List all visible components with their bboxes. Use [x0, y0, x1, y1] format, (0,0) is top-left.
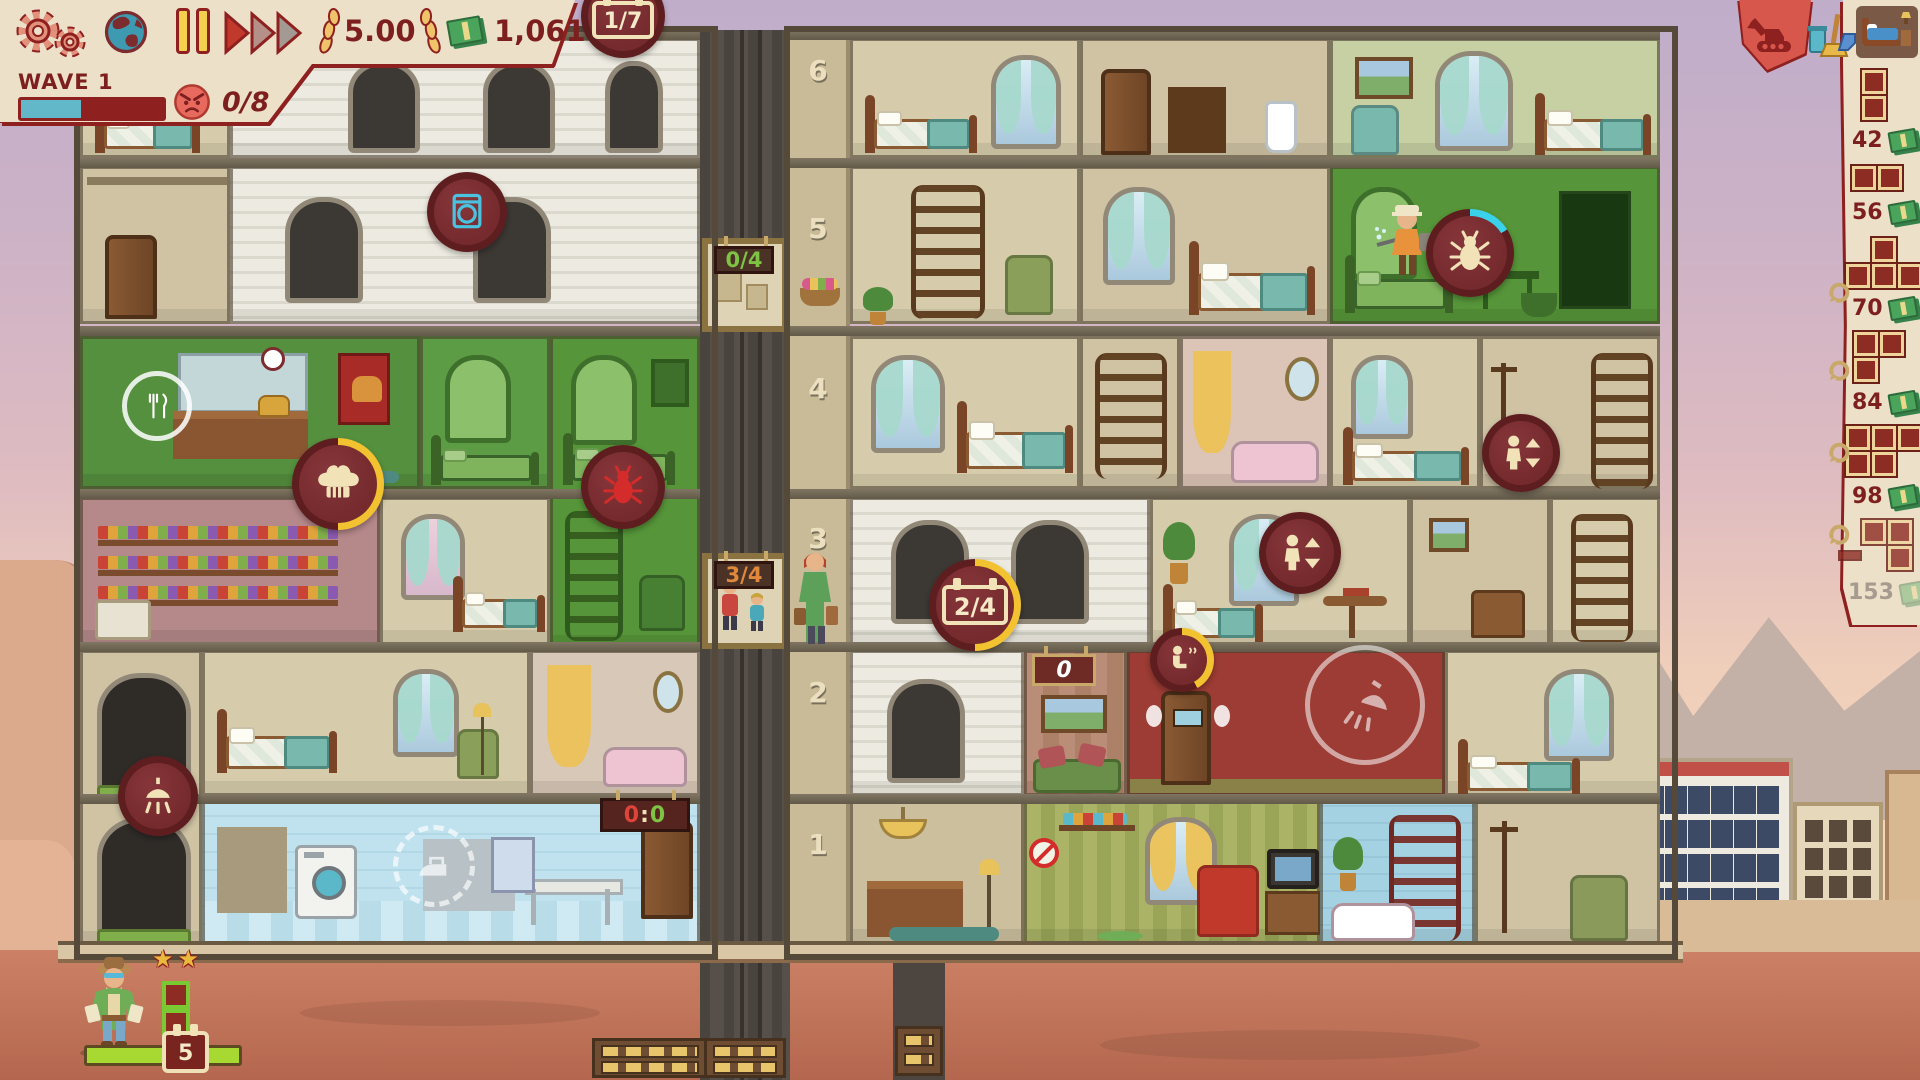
angry-face-icon — [172, 82, 212, 122]
bug-icon — [1446, 229, 1494, 277]
bed-furniture-icon — [1860, 10, 1914, 54]
room-study[interactable] — [1410, 497, 1550, 645]
waiting-guest-panel[interactable]: ★★ 5 — [70, 945, 250, 1080]
shoe-cubby — [217, 827, 287, 913]
basement-hatch-shaft — [704, 1038, 786, 1078]
shower-curtain — [547, 665, 591, 767]
rotate-shape-icon[interactable] — [1828, 442, 1850, 464]
steam-puff — [1146, 705, 1162, 727]
basket — [1521, 293, 1557, 317]
money-icon — [446, 15, 484, 47]
room-bedroom[interactable] — [1330, 38, 1660, 158]
wave-label: WAVE 1 — [18, 70, 166, 94]
floor-lamp — [473, 703, 491, 717]
rating-display: 5.00 — [316, 8, 444, 54]
wall-clock — [261, 347, 285, 371]
armchair — [639, 575, 685, 631]
tv-stand — [1265, 891, 1321, 935]
shop-item-price-disabled: 153 — [1848, 580, 1920, 605]
wall-shelf — [1059, 825, 1135, 831]
rooms-tab-selected[interactable] — [1856, 6, 1918, 58]
floor-label-2: 2 — [796, 676, 840, 709]
bread-box — [95, 600, 151, 640]
ground — [0, 950, 1920, 1080]
shower-room-icon — [1305, 645, 1425, 765]
sand-patch — [1100, 1030, 1480, 1060]
shop-item-shape-2-vertical[interactable] — [1862, 70, 1888, 122]
shop-item-price: 84 — [1852, 390, 1917, 415]
person-elevator-icon — [1277, 530, 1323, 576]
day-counter: 1/7 — [604, 9, 643, 34]
shop-item-shape-corner[interactable] — [1854, 332, 1906, 384]
flower-basket — [800, 288, 840, 306]
floor-label-1: 1 — [796, 828, 840, 861]
sitting-person-steam-icon — [1164, 642, 1200, 678]
prohibition-sign — [1029, 838, 1059, 868]
room-bathroom[interactable] — [1180, 336, 1330, 489]
shower-icon — [136, 774, 180, 818]
room-bedroom-infested[interactable] — [420, 336, 550, 489]
elevator-request-badge[interactable] — [1259, 512, 1341, 594]
elevator-upper-occupancy-sign: 0/4 — [714, 246, 774, 274]
money-value: 1,061 — [494, 14, 586, 48]
shop-item-price: 42 — [1852, 128, 1917, 153]
round-table — [1323, 596, 1387, 606]
wave-progress-bar — [18, 97, 166, 121]
demolish-button[interactable] — [1733, 0, 1811, 70]
elevator-lower-occupancy: 3/4 — [726, 563, 763, 587]
shop-item-price: 56 — [1852, 200, 1917, 225]
sand-patch — [300, 1000, 600, 1026]
room-bedroom[interactable] — [1080, 166, 1330, 324]
toilet-occupied-badge[interactable] — [1150, 628, 1214, 692]
flowers — [802, 278, 838, 290]
book — [1343, 588, 1369, 596]
steam-puff — [1214, 705, 1230, 727]
washing-machine — [295, 845, 357, 919]
coat-rack — [1502, 821, 1507, 933]
room-bedroom[interactable] — [850, 38, 1080, 158]
door-window — [1173, 709, 1203, 727]
cash-icon — [1887, 128, 1918, 154]
calendar-icon: 1/7 — [592, 1, 655, 39]
iron-icon — [413, 845, 455, 887]
red-armchair — [1197, 865, 1259, 937]
pest-alert-badge[interactable] — [581, 445, 665, 529]
wave-progress-fill — [21, 100, 81, 118]
dresser — [1168, 87, 1226, 153]
chest — [1471, 590, 1525, 638]
rug — [889, 927, 999, 941]
poster — [491, 837, 535, 893]
blueprint-washer-icon — [445, 190, 489, 234]
restaurant-room-icon — [122, 371, 192, 441]
burger-poster — [338, 353, 390, 425]
shop-item-shape-S[interactable] — [1854, 520, 1914, 572]
basement-hatch-left — [592, 1038, 708, 1078]
mirror — [1285, 357, 1319, 401]
lounge-counter: 0 — [1056, 658, 1071, 683]
elevator-lower-occupancy-sign: 3/4 — [714, 561, 774, 589]
armchair — [1005, 255, 1053, 315]
game-screen: 0/4 3/4 — [0, 0, 1920, 1080]
road — [1660, 900, 1920, 952]
sidewalk — [58, 941, 1683, 963]
laundry-scoreboard: 0:0 — [600, 798, 690, 832]
elevator-upper-occupancy: 0/4 — [726, 248, 763, 272]
room-bedroom[interactable] — [202, 650, 530, 796]
person-elevator-icon — [1499, 431, 1543, 475]
score-sep: : — [640, 803, 650, 828]
pause-button[interactable] — [176, 8, 216, 56]
wave-indicator: WAVE 1 — [18, 70, 166, 121]
room-bathhouse[interactable] — [1320, 800, 1475, 944]
cash-icon — [1887, 390, 1918, 416]
floor-label-4: 4 — [796, 372, 840, 405]
armchair — [1570, 875, 1628, 941]
cash-icon — [1887, 484, 1918, 510]
chef-hat-icon — [313, 459, 363, 509]
room-bedroom[interactable] — [1445, 650, 1660, 796]
room-unbuilt-facade[interactable] — [850, 650, 1024, 796]
money-display: 1,061 — [448, 14, 586, 48]
room-stairwell[interactable] — [1080, 336, 1180, 489]
calendar-icon: 2/4 — [942, 585, 1008, 625]
room-storage[interactable] — [80, 166, 230, 324]
toilet — [1265, 101, 1297, 153]
guest-character — [82, 953, 146, 1057]
settings-gears-icon[interactable] — [12, 6, 94, 60]
spill-puddle — [1097, 931, 1143, 941]
guest-stay-timer-badge[interactable]: 2/4 — [929, 559, 1021, 651]
armchair — [457, 729, 499, 779]
shop-item-shape-2-horizontal[interactable] — [1852, 166, 1904, 192]
room-timer: 2/4 — [954, 593, 996, 621]
fork-knife-icon — [140, 389, 174, 423]
cash-icon — [1887, 296, 1918, 322]
room-bathroom[interactable] — [530, 650, 700, 796]
lounge-counter-sign: 0 — [1032, 654, 1096, 686]
room-sitting[interactable] — [1475, 800, 1660, 944]
fast-forward-button[interactable] — [222, 10, 306, 56]
shop-item-price: 70 — [1852, 296, 1917, 321]
guest-stars: ★★ — [152, 945, 203, 973]
laundry-room-icon — [393, 825, 475, 907]
guest-days-calendar: 5 — [162, 1031, 209, 1073]
shower-icon — [1334, 674, 1396, 736]
floor-lamp-pole — [481, 717, 484, 775]
rating-value: 5.00 — [344, 14, 416, 48]
rotate-shape-icon[interactable] — [1828, 282, 1850, 304]
bellhop-character — [792, 548, 840, 646]
room-lobby[interactable] — [850, 800, 1024, 944]
extermination-progress-badge[interactable] — [1426, 209, 1514, 297]
floor-label-6: 6 — [796, 54, 840, 87]
shower-request-badge[interactable] — [118, 756, 198, 836]
tv — [1267, 849, 1319, 889]
room-stairwell[interactable] — [850, 166, 1080, 324]
laurel-left-icon — [316, 8, 342, 54]
pipe — [87, 177, 227, 185]
excavator-icon — [1745, 8, 1799, 58]
room-bedroom[interactable] — [850, 336, 1080, 489]
guest-days-left: 5 — [178, 1041, 193, 1066]
rotate-shape-icon[interactable] — [1828, 360, 1850, 382]
elevator-request-badge[interactable] — [1482, 414, 1560, 492]
room-stairwell[interactable] — [1550, 497, 1660, 645]
construction-badge[interactable] — [427, 172, 507, 252]
anger-count: 0/8 — [222, 87, 269, 118]
lobby-lamp — [979, 859, 999, 875]
jars — [1063, 813, 1127, 825]
rotate-shape-icon[interactable] — [1828, 524, 1850, 546]
shop-item-price: 98 — [1852, 484, 1917, 509]
floor-label-5: 5 — [796, 212, 840, 245]
shop-item-shape-T[interactable] — [1846, 238, 1920, 290]
cooking-progress-badge[interactable] — [292, 438, 384, 530]
language-globe-icon[interactable] — [100, 6, 152, 58]
room-bedroom[interactable] — [1080, 38, 1330, 158]
restaurant-counter — [173, 411, 308, 459]
shop-item-shape-P[interactable] — [1846, 426, 1920, 478]
room-bedroom[interactable] — [380, 497, 550, 645]
score-right: 0 — [650, 803, 666, 828]
cash-icon — [1898, 580, 1920, 606]
cash-icon — [1887, 200, 1918, 226]
red-bug-icon — [600, 464, 646, 510]
score-left: 0 — [624, 803, 640, 828]
chandelier-body — [879, 819, 927, 839]
cleaning-tab[interactable] — [1806, 12, 1858, 64]
burger — [258, 395, 290, 417]
armchair — [1351, 105, 1399, 155]
bookshelf — [1559, 191, 1631, 309]
anger-indicator: 0/8 — [172, 82, 269, 122]
mirror — [653, 671, 683, 713]
basement-hatch-column — [895, 1026, 943, 1076]
laurel-right-icon — [418, 8, 444, 54]
room-den[interactable] — [1024, 800, 1320, 944]
room-bedroom[interactable] — [1330, 336, 1480, 489]
